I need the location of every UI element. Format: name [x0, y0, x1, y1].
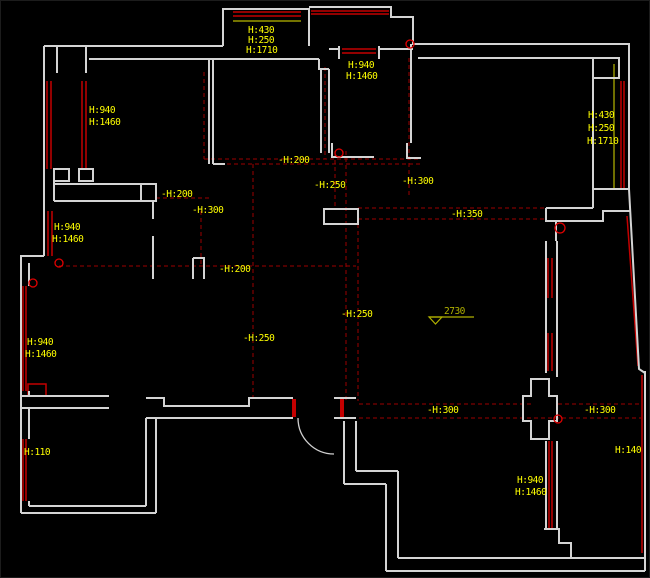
- height-label: -H:350: [451, 209, 483, 220]
- markers-layer: [29, 40, 565, 423]
- dashed-guides-layer: [59, 58, 641, 418]
- height-label: H:940: [89, 105, 116, 116]
- height-label: -H:200: [278, 155, 310, 166]
- height-label: -H:250: [341, 309, 373, 320]
- level-mark-triangle-icon: [429, 317, 442, 324]
- wall-segment: [324, 209, 358, 224]
- height-label: H:1460: [25, 349, 57, 360]
- height-label: -H:300: [192, 205, 224, 216]
- wall-segment: [544, 529, 571, 558]
- wall-segment: [309, 7, 629, 189]
- wall-segment: [319, 59, 329, 69]
- cad-viewport[interactable]: 2730H:430H:250H:1710H:940H:1460H:940H:14…: [1, 1, 650, 578]
- height-label: H:1460: [515, 487, 547, 498]
- wall-segment: [546, 208, 556, 241]
- wall-segment: [146, 398, 293, 406]
- cad-window: 2730H:430H:250H:1710H:940H:1460H:940H:14…: [0, 0, 650, 578]
- height-label: H:250: [588, 123, 615, 134]
- height-label: H:110: [24, 447, 51, 458]
- height-label: H:1710: [246, 45, 278, 56]
- height-label: H:1460: [89, 117, 121, 128]
- wall-segment: [193, 258, 204, 279]
- level-mark-text: 2730: [444, 306, 466, 317]
- height-label: -H:300: [402, 176, 434, 187]
- wall-segment: [141, 184, 156, 201]
- height-label: -H:300: [584, 405, 616, 416]
- height-label: -H:250: [314, 180, 346, 191]
- height-label: H:1460: [346, 71, 378, 82]
- level-mark-layer: 2730: [429, 306, 474, 324]
- wall-segment: [556, 211, 631, 221]
- height-label: H:940: [517, 475, 544, 486]
- door-swing-arc: [298, 418, 334, 454]
- height-label: H:140: [615, 445, 642, 456]
- height-label: -H:200: [161, 189, 193, 200]
- door-layer: [298, 418, 334, 454]
- height-label: -H:250: [243, 333, 275, 344]
- height-label: H:430: [588, 110, 615, 121]
- height-label: H:940: [348, 60, 375, 71]
- wall-segment: [54, 169, 69, 181]
- height-label: -H:300: [427, 405, 459, 416]
- windows-layer: [23, 11, 642, 553]
- height-label: H:940: [54, 222, 81, 233]
- wall-segment: [332, 143, 374, 157]
- wall-segment: [593, 58, 619, 78]
- height-label: H:1460: [52, 234, 84, 245]
- window-line: [28, 384, 46, 396]
- red-circle-marker: [335, 149, 343, 157]
- height-label: H:940: [27, 337, 54, 348]
- wall-segment: [523, 379, 557, 439]
- height-label: -H:200: [219, 264, 251, 275]
- red-circle-marker: [29, 279, 37, 287]
- height-label: H:1710: [587, 136, 619, 147]
- wall-segment: [79, 169, 93, 181]
